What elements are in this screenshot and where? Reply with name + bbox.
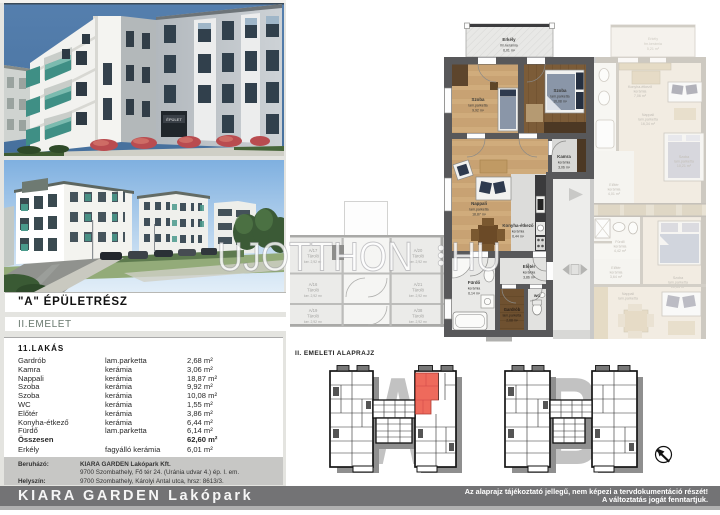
svg-text:Erkély: Erkély — [502, 37, 516, 42]
svg-text:A/19: A/19 — [309, 308, 318, 313]
svg-text:A/38: A/38 — [414, 308, 423, 313]
svg-text:Tároló: Tároló — [307, 254, 320, 259]
svg-text:ker. 2,92 m²: ker. 2,92 m² — [409, 294, 428, 298]
svg-text:kerámia: kerámia — [523, 271, 536, 275]
svg-text:3,06 m²: 3,06 m² — [558, 166, 571, 170]
svg-text:ker. 2,92 m²: ker. 2,92 m² — [409, 320, 428, 324]
svg-text:A/16: A/16 — [309, 282, 318, 287]
svg-text:Szoba: Szoba — [472, 97, 485, 102]
svg-text:2,68 m²: 2,68 m² — [506, 319, 518, 323]
svg-text:ker. 2,92 m²: ker. 2,92 m² — [304, 294, 323, 298]
svg-text:WC: WC — [534, 294, 541, 298]
svg-text:6,01 m²: 6,01 m² — [503, 49, 516, 53]
svg-text:Előtér: Előtér — [523, 264, 536, 269]
svg-text:ker. 2,92 m²: ker. 2,92 m² — [304, 260, 323, 264]
svg-text:Gardrób: Gardrób — [504, 307, 521, 312]
svg-text:Fürdő: Fürdő — [468, 280, 481, 285]
svg-text:lam.parketta: lam.parketta — [469, 208, 488, 212]
svg-text:Tároló: Tároló — [412, 314, 425, 319]
svg-text:Tároló: Tároló — [307, 314, 320, 319]
svg-text:6,14 m²: 6,14 m² — [468, 292, 481, 296]
svg-text:Konyha-étkező: Konyha-étkező — [502, 223, 534, 228]
svg-text:6,44 m²: 6,44 m² — [512, 235, 525, 239]
svg-text:ker. 2,92 m²: ker. 2,92 m² — [409, 260, 428, 264]
svg-text:kerámia: kerámia — [468, 287, 481, 291]
svg-text:9,92 m²: 9,92 m² — [472, 109, 485, 113]
svg-text:kerámia: kerámia — [558, 161, 571, 165]
svg-text:Tároló: Tároló — [307, 288, 320, 293]
svg-text:lam.parketta: lam.parketta — [468, 104, 487, 108]
svg-text:3,86 m²: 3,86 m² — [523, 276, 536, 280]
svg-text:lam.parketta: lam.parketta — [503, 314, 522, 318]
svg-text:lam.parketta: lam.parketta — [550, 95, 569, 99]
svg-text:fm.kerámia: fm.kerámia — [500, 44, 517, 48]
svg-text:A/21: A/21 — [414, 282, 423, 287]
svg-text:Kamra: Kamra — [557, 154, 571, 159]
svg-text:kerámia: kerámia — [512, 230, 525, 234]
svg-text:A/17: A/17 — [309, 248, 318, 253]
svg-text:A/20: A/20 — [414, 248, 423, 253]
svg-text:10,08 m²: 10,08 m² — [553, 100, 568, 104]
svg-text:Tároló: Tároló — [412, 254, 425, 259]
svg-text:ker. 2,92 m²: ker. 2,92 m² — [304, 320, 323, 324]
svg-text:Nappali: Nappali — [471, 201, 487, 206]
svg-text:18,87 m²: 18,87 m² — [472, 213, 487, 217]
svg-text:Tároló: Tároló — [412, 288, 425, 293]
svg-text:II. EMELETI ALAPRAJZ: II. EMELETI ALAPRAJZ — [295, 350, 375, 357]
svg-text:Szoba: Szoba — [554, 88, 567, 93]
